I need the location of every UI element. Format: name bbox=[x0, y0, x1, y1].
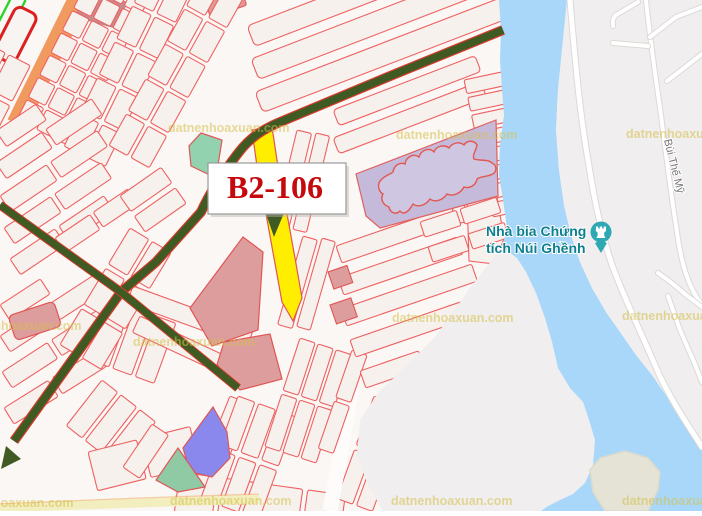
svg-text:datnenhoaxuan.com: datnenhoaxuan.com bbox=[626, 127, 702, 141]
svg-text:datnenhoaxuan.com: datnenhoaxuan.com bbox=[622, 494, 702, 508]
svg-text:datnenhoaxuan.com: datnenhoaxuan.com bbox=[170, 494, 292, 508]
svg-text:datnenhoaxuan.com: datnenhoaxuan.com bbox=[168, 121, 290, 135]
svg-text:datnenhoaxuan.com: datnenhoaxuan.com bbox=[391, 494, 513, 508]
svg-text:Nhà bia Chứng: Nhà bia Chứng bbox=[486, 223, 586, 239]
svg-text:datnenhoaxuan.com: datnenhoaxuan.com bbox=[392, 311, 514, 325]
svg-text:tích Núi Ghềnh: tích Núi Ghềnh bbox=[486, 240, 586, 256]
svg-text:datnenhoaxuan.com: datnenhoaxuan.com bbox=[133, 335, 255, 349]
svg-text:datnenhoaxuan.com: datnenhoaxuan.com bbox=[396, 128, 518, 142]
svg-text:B2-106: B2-106 bbox=[227, 169, 323, 205]
svg-text:datnenhoaxuan.com: datnenhoaxuan.com bbox=[0, 496, 74, 510]
svg-text:datnenhoaxuan.com: datnenhoaxuan.com bbox=[0, 319, 82, 333]
svg-text:datnenhoaxuan.com: datnenhoaxuan.com bbox=[622, 309, 702, 323]
